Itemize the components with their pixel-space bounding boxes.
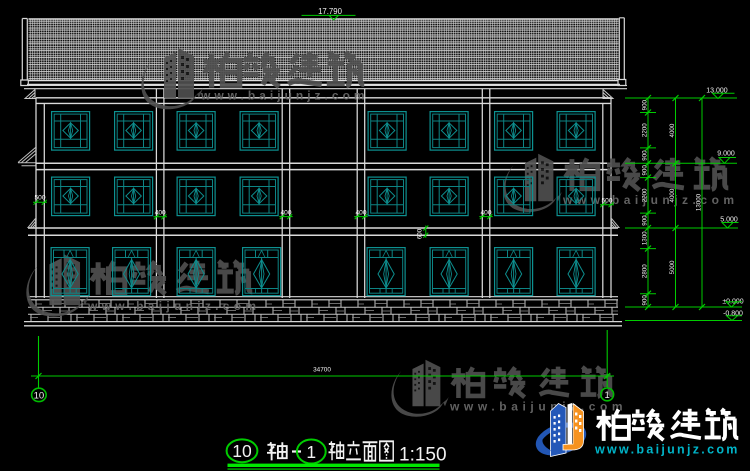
svg-text:www.baijunjz.com: www.baijunjz.com: [200, 89, 369, 103]
svg-text:400: 400: [280, 209, 291, 216]
svg-text:500: 500: [601, 198, 612, 205]
svg-text:34700: 34700: [313, 367, 331, 374]
svg-text:500: 500: [34, 195, 45, 202]
svg-text:900: 900: [641, 165, 648, 176]
svg-text:www.baijunjz.com: www.baijunjz.com: [449, 400, 627, 414]
svg-text:2200: 2200: [641, 188, 648, 202]
svg-text:13000: 13000: [695, 193, 702, 211]
svg-text:10: 10: [34, 390, 45, 401]
svg-text:www.baijunjz.com: www.baijunjz.com: [594, 443, 740, 457]
svg-text:10: 10: [232, 441, 252, 461]
svg-text:400: 400: [355, 209, 366, 216]
svg-text:900: 900: [641, 295, 648, 306]
svg-text:900: 900: [641, 215, 648, 226]
svg-text:600: 600: [417, 228, 424, 239]
svg-text:4000: 4000: [669, 188, 676, 202]
svg-text:2800: 2800: [641, 264, 648, 278]
svg-text:17.790: 17.790: [318, 7, 343, 16]
svg-text:900: 900: [641, 150, 648, 161]
svg-text:400: 400: [155, 210, 166, 217]
svg-text:1:150: 1:150: [399, 445, 447, 466]
svg-text:1: 1: [306, 442, 316, 462]
svg-text:-0.800: -0.800: [723, 311, 743, 318]
svg-text:5000: 5000: [669, 260, 676, 274]
svg-text:1300: 1300: [641, 231, 648, 245]
svg-text:4000: 4000: [669, 123, 676, 137]
svg-text:900: 900: [641, 99, 648, 110]
svg-text:www.baijunjz.com: www.baijunjz.com: [87, 299, 260, 313]
svg-text:9.000: 9.000: [717, 151, 735, 158]
svg-text:2200: 2200: [641, 123, 648, 137]
svg-text:400: 400: [480, 209, 491, 216]
svg-text:1: 1: [605, 390, 610, 401]
